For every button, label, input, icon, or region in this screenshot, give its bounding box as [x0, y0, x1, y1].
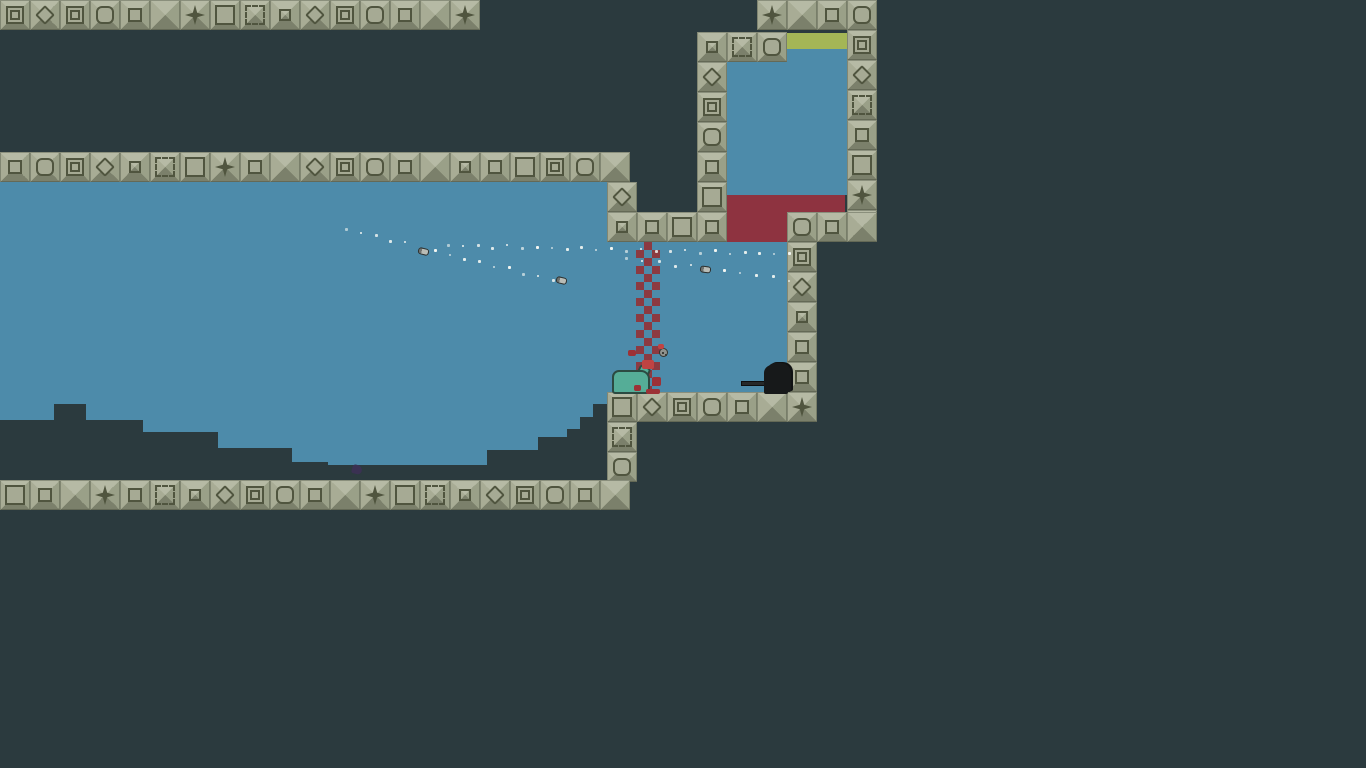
- blood-decal: [642, 360, 654, 369]
- wall-tile: [847, 120, 877, 150]
- wall-tile: [450, 152, 480, 182]
- wall-tile: [757, 0, 787, 30]
- terrain-step: [0, 420, 54, 480]
- game-viewport[interactable]: Shinoa ♥ Broso56: [0, 0, 1366, 768]
- wall-tile: [847, 0, 877, 30]
- wall-tile: [787, 362, 817, 392]
- wall-tile: [847, 150, 877, 180]
- wall-tile: [330, 480, 360, 510]
- wall-tile: [270, 152, 300, 182]
- wall-tile: [667, 212, 697, 242]
- bullet-trail-dot: [537, 275, 539, 277]
- wall-tile: [0, 480, 30, 510]
- wall-tile: [697, 32, 727, 62]
- wall-tile: [600, 480, 630, 510]
- wall-tile: [240, 0, 270, 30]
- wall-tile: [120, 0, 150, 30]
- bullet-trail-dot: [788, 280, 790, 282]
- wall-tile: [90, 0, 120, 30]
- wall-tile: [420, 0, 450, 30]
- bullet-trail-dot: [566, 248, 569, 251]
- terrain-step: [218, 448, 292, 480]
- bullet-trail-dot: [552, 279, 555, 282]
- wall-tile: [90, 152, 120, 182]
- wall-tile: [390, 152, 420, 182]
- blood-decal: [634, 385, 641, 391]
- bullet-trail-dot: [699, 252, 702, 255]
- terrain-step: [538, 437, 567, 480]
- bullet-trail-dot: [658, 260, 661, 263]
- blood-decal: [628, 350, 636, 356]
- wall-tile: [787, 212, 817, 242]
- wall-tile: [570, 152, 600, 182]
- terrain-step: [54, 404, 86, 480]
- terrain-step: [580, 417, 593, 480]
- wall-tile: [60, 0, 90, 30]
- terrain-step: [487, 450, 538, 480]
- wall-tile: [600, 152, 630, 182]
- wall-tile: [637, 392, 667, 422]
- wall-tile: [480, 152, 510, 182]
- bullet-trail-dot: [655, 250, 658, 253]
- wall-tile: [607, 212, 637, 242]
- wall-tile: [150, 0, 180, 30]
- bullet-trail-dot: [462, 245, 464, 247]
- terrain-step: [292, 462, 328, 480]
- wall-tile: [510, 152, 540, 182]
- wall-tile: [330, 152, 360, 182]
- terrain-step: [593, 404, 607, 480]
- wall-tile: [727, 392, 757, 422]
- bullet-trail-dot: [463, 258, 466, 261]
- bullet-trail-dot: [536, 246, 539, 249]
- wall-tile: [360, 152, 390, 182]
- bullet-trail-dot: [449, 254, 451, 256]
- wall-tile: [637, 212, 667, 242]
- wall-tile: [847, 60, 877, 90]
- wall-tile: [787, 272, 817, 302]
- wall-tile: [787, 0, 817, 30]
- wall-tile: [847, 180, 877, 210]
- wall-tile: [60, 152, 90, 182]
- wall-tile: [180, 0, 210, 30]
- wall-tile: [787, 302, 817, 332]
- terrain-step: [143, 432, 218, 480]
- wall-tile: [697, 152, 727, 182]
- wall-tile: [540, 152, 570, 182]
- wall-tile: [697, 212, 727, 242]
- wall-tile: [150, 480, 180, 510]
- wall-tile: [450, 0, 480, 30]
- blood-decal: [652, 377, 661, 386]
- bullet-trail-dot: [625, 250, 628, 253]
- wall-tile: [570, 480, 600, 510]
- wall-tile: [847, 30, 877, 60]
- bullet-trail-dot: [744, 251, 747, 254]
- wall-tile: [390, 480, 420, 510]
- bullet-trail-dot: [625, 257, 628, 260]
- bullet-sprite: [700, 265, 712, 273]
- wall-tile: [697, 92, 727, 122]
- wall-tile: [450, 480, 480, 510]
- wall-tile: [757, 392, 787, 422]
- wall-tile: [390, 0, 420, 30]
- bullet-trail-dot: [345, 228, 348, 231]
- wall-tile: [540, 480, 570, 510]
- bullet-trail-dot: [739, 272, 741, 274]
- wall-tile: [787, 332, 817, 362]
- bullet-trail-dot: [772, 275, 775, 278]
- wall-tile: [180, 480, 210, 510]
- bullet-trail-dot: [788, 252, 791, 255]
- bullet-trail-dot: [477, 244, 480, 247]
- wall-tile: [787, 242, 817, 272]
- wall-tile: [607, 182, 637, 212]
- terrain-step: [86, 420, 143, 480]
- wall-tile: [757, 32, 787, 62]
- wall-tile: [270, 0, 300, 30]
- wall-tile: [180, 152, 210, 182]
- bullet-trail-dot: [447, 244, 450, 247]
- wall-tile: [300, 152, 330, 182]
- bullet-trail-dot: [434, 249, 437, 252]
- upper-room-green-strip: [787, 33, 847, 49]
- blood-decal: [658, 344, 664, 349]
- wall-tile: [607, 422, 637, 452]
- wall-tile: [847, 212, 877, 242]
- wall-tile: [120, 480, 150, 510]
- wall-tile: [210, 0, 240, 30]
- bullet-trail-dot: [723, 269, 726, 272]
- wall-tile: [480, 480, 510, 510]
- wall-tile: [360, 0, 390, 30]
- wall-tile: [30, 152, 60, 182]
- wall-tile: [360, 480, 390, 510]
- wall-tile: [0, 0, 30, 30]
- terrain-step: [567, 429, 580, 480]
- wall-tile: [270, 480, 300, 510]
- wall-tile: [0, 152, 30, 182]
- wall-tile: [30, 0, 60, 30]
- wall-tile: [120, 152, 150, 182]
- wall-tile: [210, 152, 240, 182]
- upper-room-water: [727, 48, 847, 195]
- wall-tile: [60, 480, 90, 510]
- wall-tile: [510, 480, 540, 510]
- wall-tile: [420, 152, 450, 182]
- bullet-trail-dot: [478, 260, 481, 263]
- crow-sprite[interactable]: [755, 360, 791, 393]
- wall-tile: [727, 32, 757, 62]
- wall-tile: [817, 212, 847, 242]
- wall-tile: [667, 392, 697, 422]
- wall-tile: [817, 0, 847, 30]
- wall-tile: [330, 0, 360, 30]
- wall-tile: [697, 392, 727, 422]
- wall-tile: [300, 0, 330, 30]
- blood-decal: [646, 389, 660, 394]
- wall-tile: [787, 392, 817, 422]
- wall-tile: [90, 480, 120, 510]
- wall-tile: [240, 152, 270, 182]
- wall-tile: [697, 62, 727, 92]
- bullet-trail-dot: [551, 247, 553, 249]
- wall-tile: [697, 182, 727, 212]
- grenade-sprite: [659, 348, 668, 357]
- bullet-trail-dot: [674, 265, 677, 268]
- wall-tile: [697, 122, 727, 152]
- bullet-trail-dot: [610, 247, 613, 250]
- bullet-trail-dot: [729, 253, 731, 255]
- wall-tile: [300, 480, 330, 510]
- wall-tile: [847, 90, 877, 120]
- wall-tile: [30, 480, 60, 510]
- wall-tile: [607, 452, 637, 482]
- wall-tile: [240, 480, 270, 510]
- wall-tile: [420, 480, 450, 510]
- bullet-trail-dot: [493, 266, 495, 268]
- wall-tile: [150, 152, 180, 182]
- wall-tile: [607, 392, 637, 422]
- wall-tile: [210, 480, 240, 510]
- bullet-trail-dot: [375, 234, 378, 237]
